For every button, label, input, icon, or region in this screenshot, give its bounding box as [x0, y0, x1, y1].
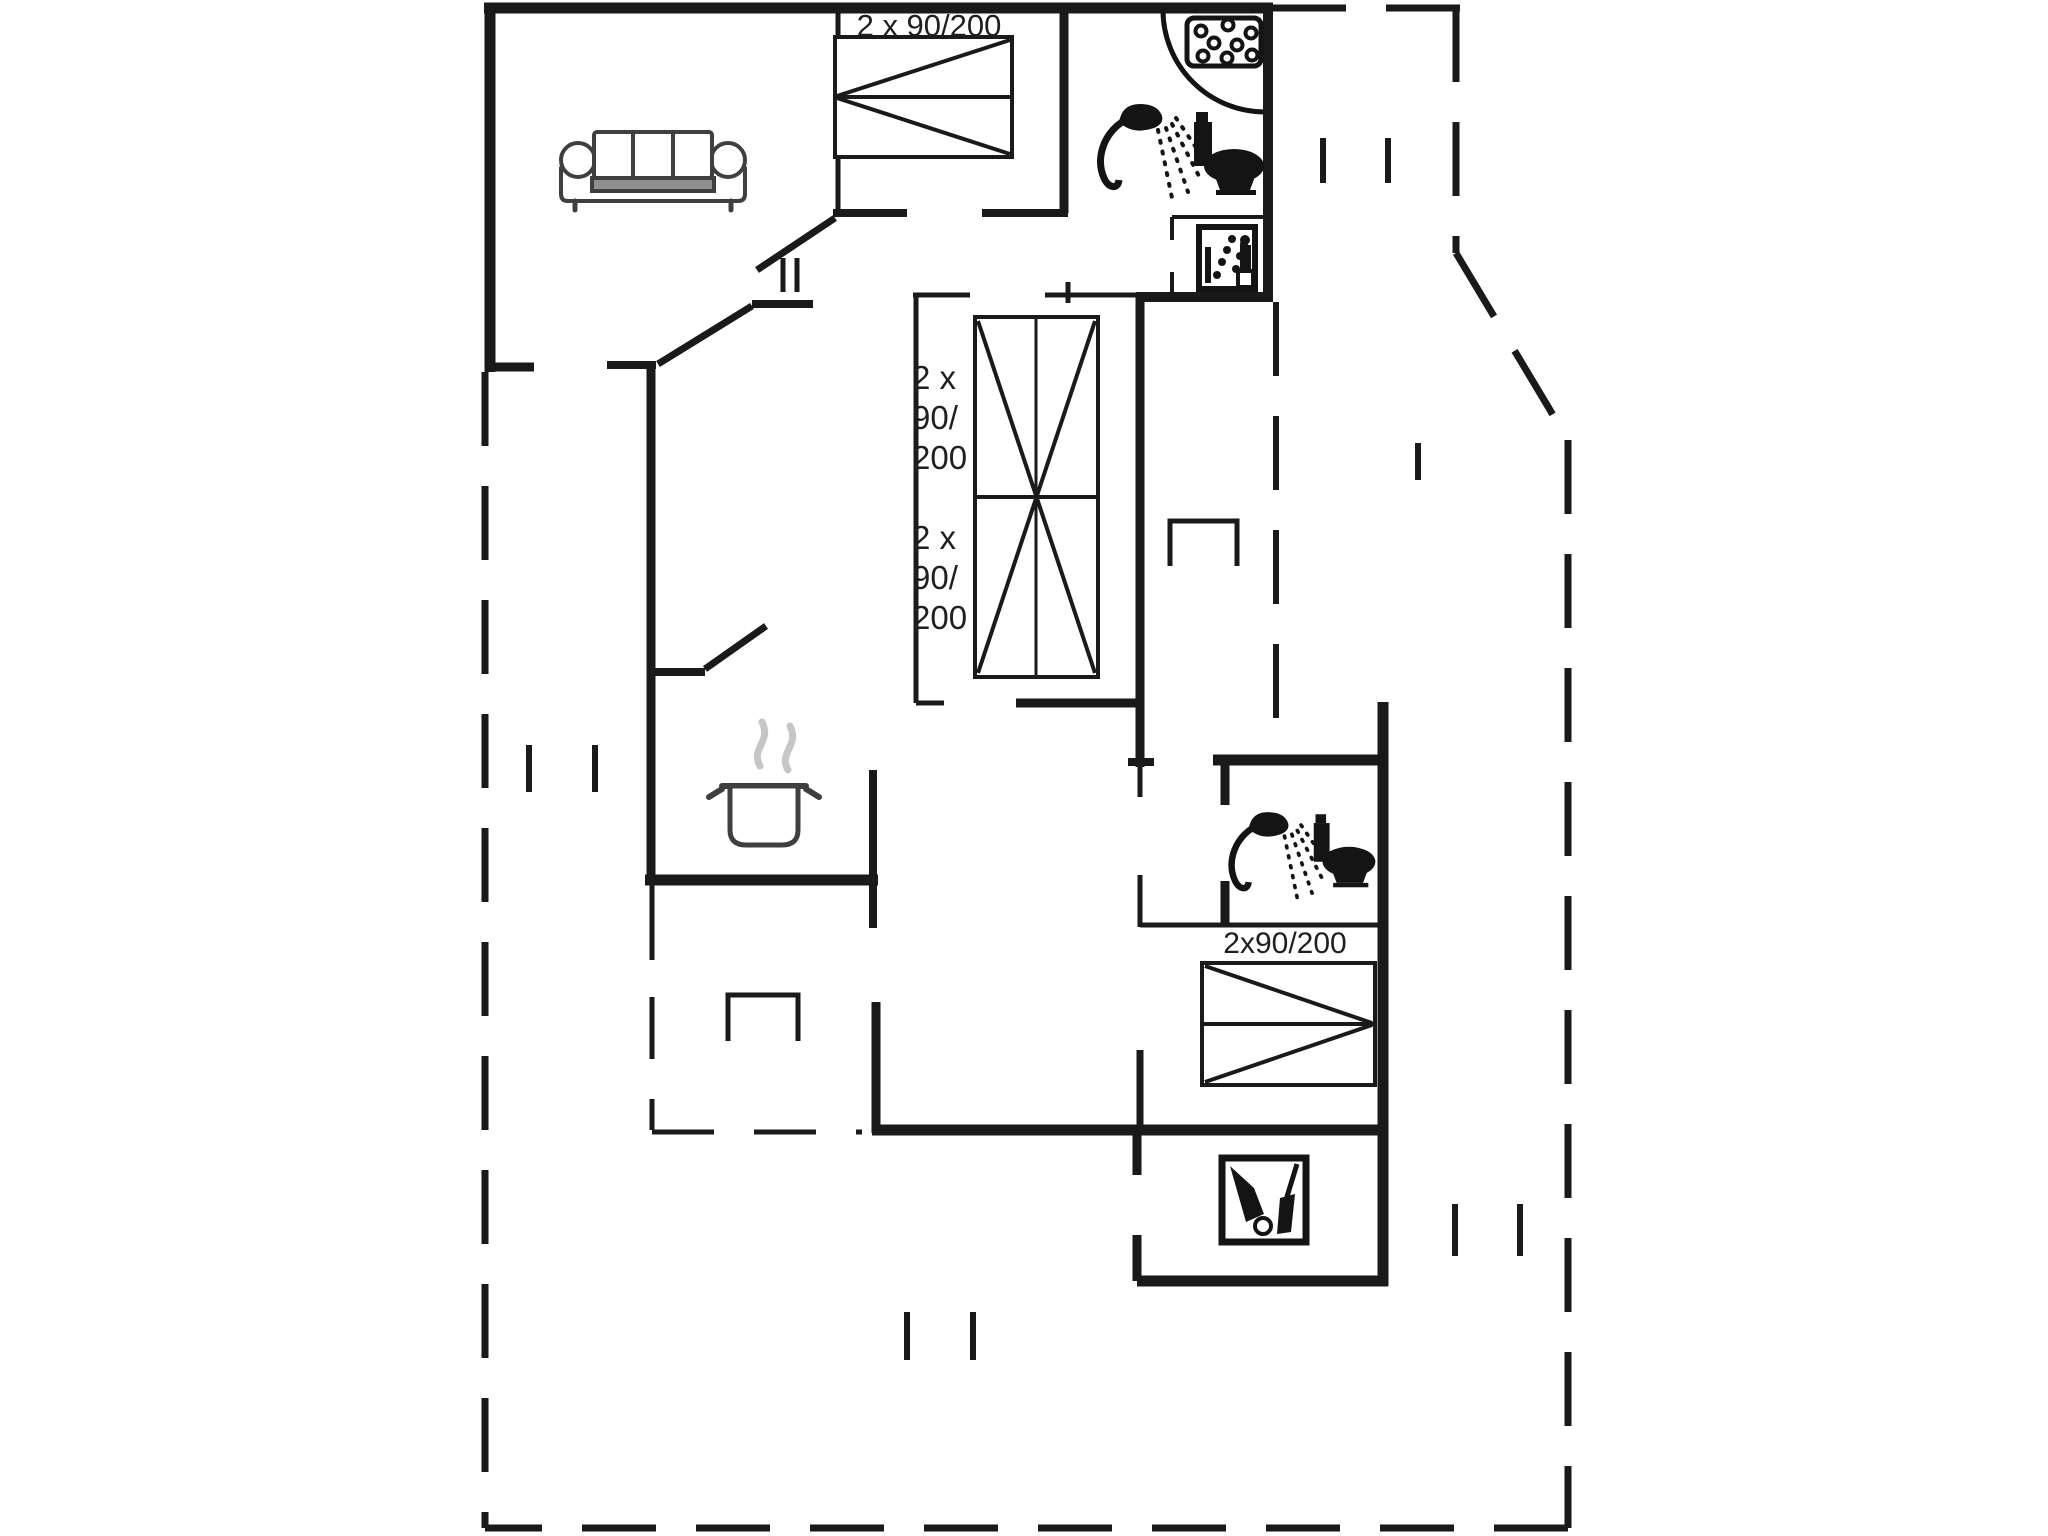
bed-size-label-line: 90/	[912, 399, 959, 436]
shower-tray-drain-icon	[1163, 10, 1265, 112]
cleaning-equipment-icon	[1222, 1158, 1306, 1242]
double-bed-icon	[1202, 963, 1375, 1085]
door-leaves	[658, 218, 835, 669]
bed-size-label-line: 2 x	[912, 519, 957, 556]
bed-size-label-top: 2 x 90/200	[857, 8, 1002, 43]
floor-plan-page: 2 x 90/200 2 x 90/ 200 2 x 90/ 200 2x90/…	[0, 0, 2048, 1536]
interior-dashed-lines	[652, 302, 1276, 1132]
floor-plan: 2 x 90/200 2 x 90/ 200 2 x 90/ 200 2x90/…	[0, 0, 2048, 1536]
double-bed-icon	[835, 37, 1012, 157]
bed-size-label-middle-lower: 2 x 90/ 200	[912, 519, 967, 636]
door-leaf	[705, 626, 766, 669]
niche-symbol	[1170, 521, 1237, 566]
sauna-icon	[1199, 227, 1255, 289]
niche-symbol	[728, 995, 798, 1041]
double-bed-icon	[975, 317, 1098, 677]
cooking-pot-icon	[709, 722, 819, 845]
bed-size-label-line: 2 x	[912, 359, 957, 396]
door-leaf	[658, 306, 752, 364]
bed-size-label-line: 200	[912, 599, 967, 636]
bed-size-label-line: 90/	[912, 559, 959, 596]
toilet-icon	[1194, 112, 1264, 195]
walls-solid	[484, 3, 1388, 1286]
bed-size-label-middle-upper: 2 x 90/ 200	[912, 359, 967, 476]
shower-icon	[1101, 104, 1210, 198]
sofa-icon	[561, 132, 745, 210]
bed-size-label-line: 200	[912, 439, 967, 476]
bed-size-label-right: 2x90/200	[1223, 927, 1346, 960]
